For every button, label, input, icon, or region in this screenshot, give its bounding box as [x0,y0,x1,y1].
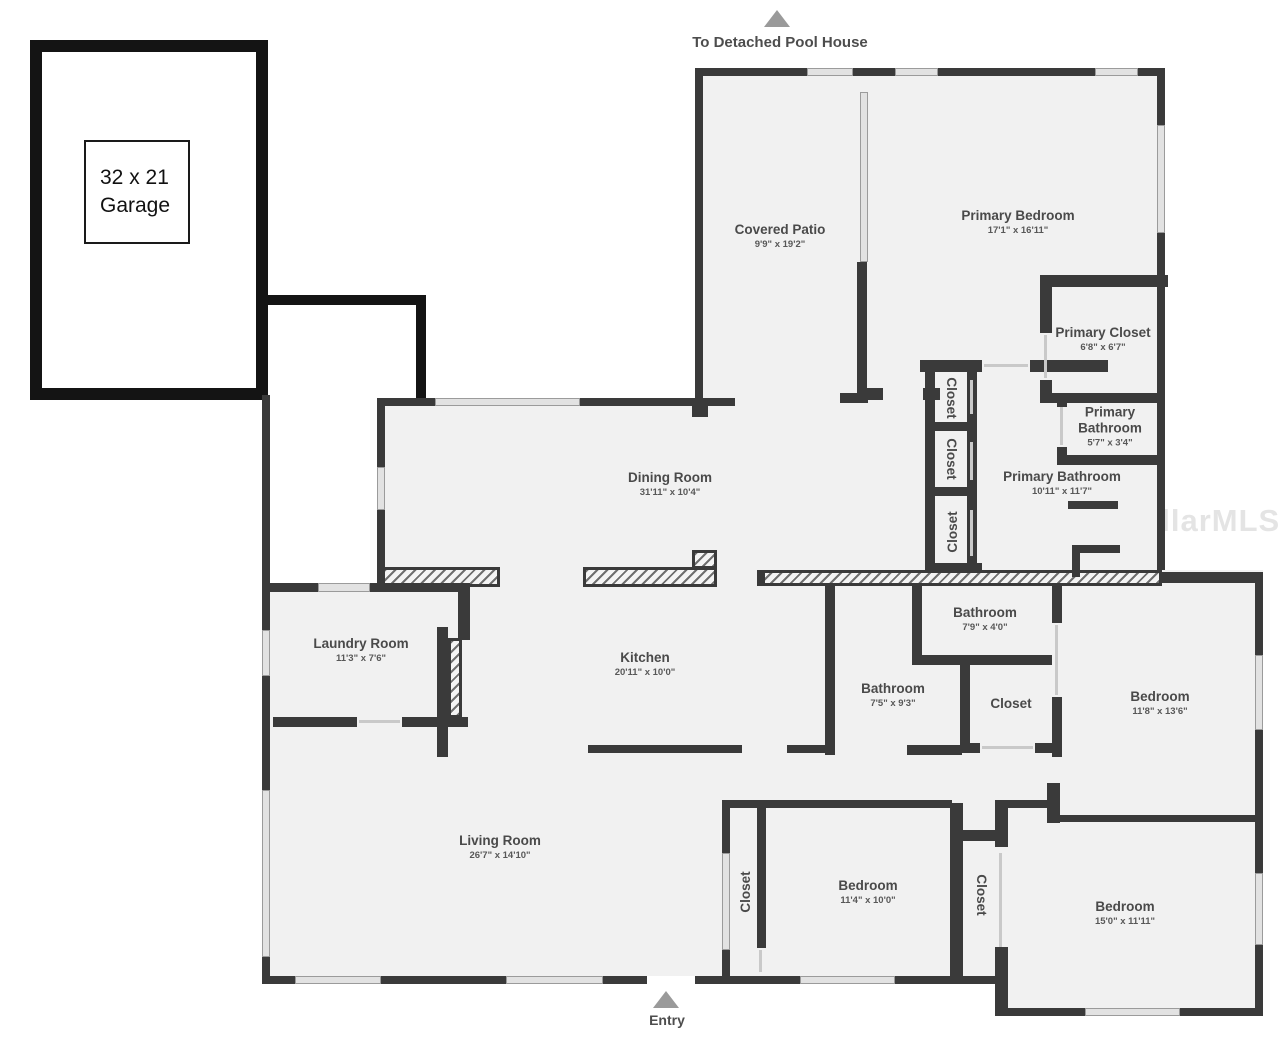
window [1085,1008,1180,1016]
wall-segment [912,655,1052,665]
door-line [984,364,1028,367]
door-line [759,950,762,972]
floor-area [377,398,925,583]
wall-segment [950,803,963,978]
wall-segment [912,586,922,665]
window [807,68,853,76]
wall-segment [1072,553,1080,577]
wall-segment [960,665,970,753]
wall-segment [825,586,835,755]
garage-wall-segment [30,388,268,400]
wall-segment [381,976,506,984]
wall-segment [1040,275,1052,333]
wall-segment [1052,815,1263,822]
wall-segment [458,583,470,640]
wall-segment [603,976,647,984]
window [377,467,385,510]
garage-wall-segment [268,295,426,305]
door-line [999,853,1002,947]
wall-segment [402,717,468,727]
window [435,398,580,406]
wall-segment [1057,455,1160,465]
wall-segment [1072,545,1120,553]
entry-label: Entry [607,1012,727,1028]
wall-segment [695,68,703,398]
wall-segment [930,487,970,496]
window [262,630,270,676]
wall-segment [262,395,270,585]
wall-segment [722,800,730,853]
door-line [982,746,1033,749]
garage-wall-segment [256,40,268,400]
door-line [970,380,973,414]
wall-segment [1160,572,1263,583]
wall-segment [262,976,295,984]
door-line [970,442,973,480]
garage-label-box: 32 x 21 Garage [84,140,190,244]
garage-name: Garage [100,192,188,220]
wall-segment [757,570,765,586]
half-wall-hatch [448,638,462,718]
wall-segment [695,976,800,984]
window [860,92,868,262]
wall-segment [960,743,980,753]
door-line [1055,625,1058,695]
wall-segment [860,388,883,400]
floor-plan: To Detached Pool House 32 x 21 Garage En… [0,0,1280,1038]
wall-segment [695,398,735,406]
wall-segment [588,745,742,753]
window [1255,873,1263,945]
entry-arrow-icon [653,991,679,1008]
wall-segment [963,830,997,841]
door-line [1060,407,1063,445]
window [722,853,730,950]
garage-wall-segment [416,295,426,403]
wall-segment [1052,697,1062,757]
garage-wall-segment [30,40,268,52]
wall-segment [925,362,981,372]
window [1157,125,1165,233]
wall-segment [1068,501,1118,509]
window [895,68,938,76]
pool-house-label: To Detached Pool House [640,34,920,51]
wall-segment [925,362,935,573]
pool-house-arrow-icon [764,10,790,27]
window [295,976,381,984]
wall-segment [995,947,1008,1008]
door-line [359,720,400,723]
wall-segment [437,627,448,757]
wall-segment [722,800,952,808]
wall-segment [1047,783,1060,823]
garage-wall-segment [30,40,42,400]
wall-segment [757,808,766,948]
door-line [1044,335,1047,378]
window [1095,68,1138,76]
wall-segment [930,422,970,431]
wall-segment [907,745,962,755]
floor-area [995,800,1263,1012]
window [318,583,370,592]
wall-segment [273,717,357,727]
wall-segment [1040,275,1168,287]
wall-segment [1030,360,1108,372]
wall-segment [722,950,730,984]
window [1255,655,1263,730]
wall-segment [925,563,982,573]
garage-size: 32 x 21 [100,164,188,192]
half-wall-hatch [583,567,717,587]
half-wall-hatch [692,550,717,569]
window [506,976,603,984]
wall-segment [895,976,1003,984]
wall-segment [1057,393,1067,407]
wall-segment [1052,586,1062,623]
door-line [970,510,973,556]
window [262,790,270,957]
window [800,976,895,984]
wall-segment [857,262,867,400]
